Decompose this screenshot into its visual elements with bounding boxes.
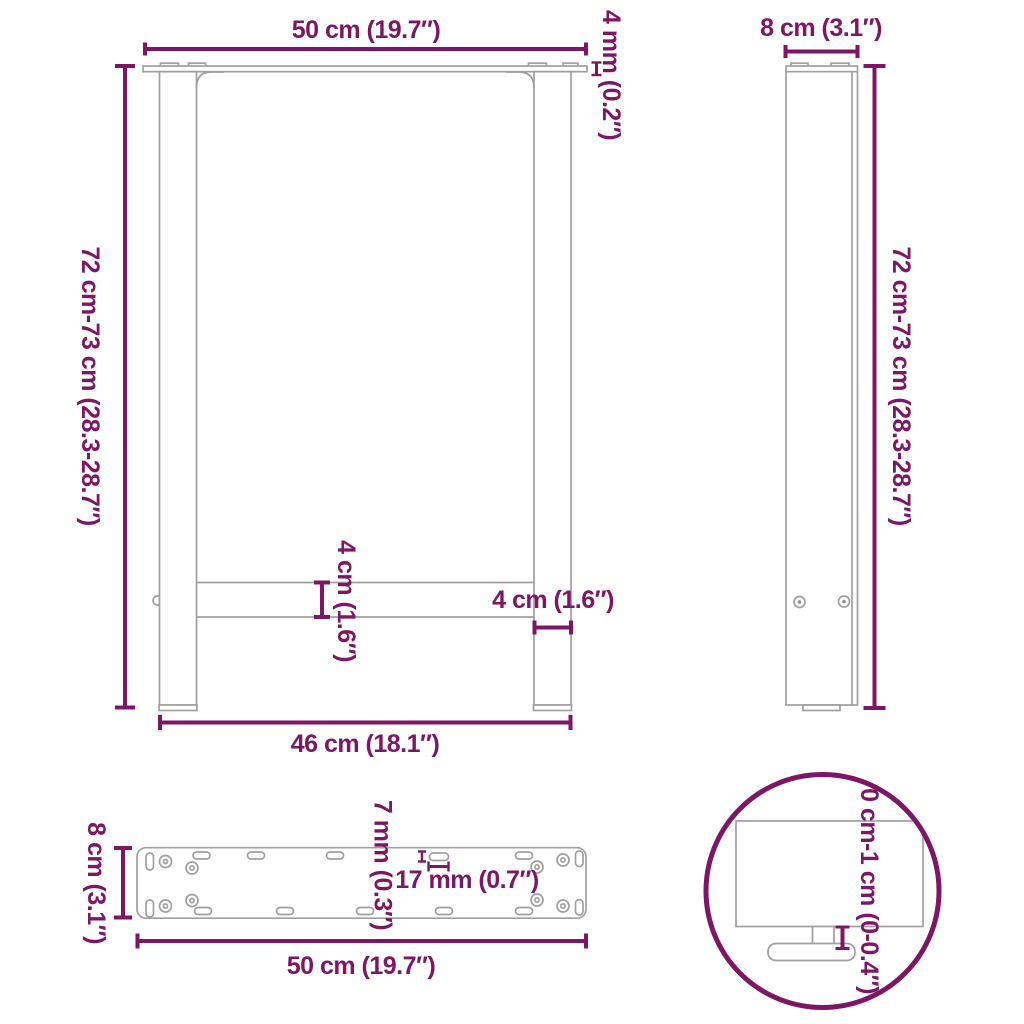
dim-label-bottom-width: 46 cm (18.1″) xyxy=(291,730,440,758)
dim-label-height: 72 cm-73 cm (28.3-28.7″) xyxy=(887,246,915,525)
dim-label-height: 72 cm-73 cm (28.3-28.7″) xyxy=(76,246,104,525)
leg-bottom-zoom xyxy=(736,821,923,927)
screw-center xyxy=(842,600,846,604)
product-dimension-diagram: 50 cm (19.7″) 4 mm (0.2″) 72 cm-73 cm (2… xyxy=(0,0,1024,1024)
foot-detail-view: 0 cm-1 cm (0-0.4″) xyxy=(706,775,939,1008)
table-leg-left xyxy=(160,72,197,705)
dim-label-top-width: 50 cm (19.7″) xyxy=(292,16,441,44)
dim-label-slot-length: 17 mm (0.7″) xyxy=(395,866,539,894)
dim-label-plate-width: 50 cm (19.7″) xyxy=(287,952,436,980)
foot-right xyxy=(534,705,572,711)
dim-label-plate-depth: 8 cm (3.1″) xyxy=(82,822,110,944)
dim-label-adjustment: 0 cm-1 cm (0-0.4″) xyxy=(855,788,883,994)
dim-label-crossbar-height: 4 cm (1.6″) xyxy=(332,540,360,662)
diagram-svg: 50 cm (19.7″) 4 mm (0.2″) 72 cm-73 cm (2… xyxy=(0,0,1024,1024)
slot-hole xyxy=(576,900,584,916)
slot-hole xyxy=(146,900,154,917)
front-view: 50 cm (19.7″) 4 mm (0.2″) 72 cm-73 cm (2… xyxy=(76,10,625,758)
foot-left xyxy=(159,705,197,711)
screw-center xyxy=(798,600,802,604)
slot-hole xyxy=(576,851,584,867)
leg-fillet-left xyxy=(197,72,225,88)
dim-label-depth: 8 cm (3.1″) xyxy=(760,14,882,42)
dim-label-leg-width: 4 cm (1.6″) xyxy=(492,586,614,614)
leg-profile xyxy=(786,66,858,705)
dim-label-slot-width: 7 mm (0.3″) xyxy=(369,800,397,930)
plate-top-view: 8 cm (3.1″) 7 mm (0.3″) 17 mm (0.7″) 50 … xyxy=(82,800,586,980)
dim-label-plate-thickness: 4 mm (0.2″) xyxy=(597,10,625,140)
foot-profile xyxy=(803,705,840,711)
side-view: 8 cm (3.1″) 72 cm-73 cm (28.3-28.7″) xyxy=(760,14,915,711)
slot-hole xyxy=(146,853,154,870)
top-plate xyxy=(143,66,587,72)
side-view-drawing xyxy=(786,63,858,710)
foot-stem xyxy=(813,927,835,945)
leg-fillet-right xyxy=(506,72,534,88)
